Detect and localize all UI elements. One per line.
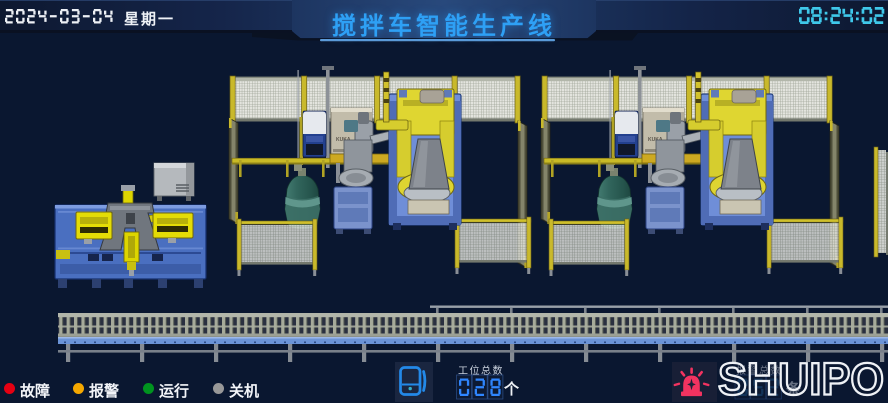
- svg-text:SHUIPO: SHUIPO: [718, 355, 884, 403]
